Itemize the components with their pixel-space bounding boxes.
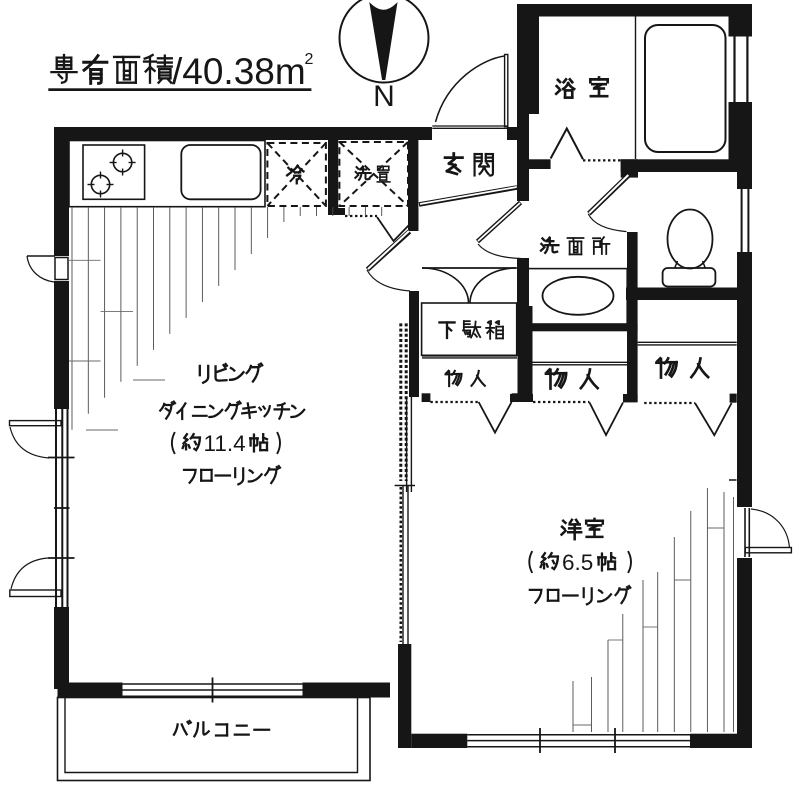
svg-text:N: N	[373, 80, 395, 113]
svg-text:6.5: 6.5	[562, 550, 593, 575]
svg-text:2: 2	[305, 51, 314, 68]
svg-text:11.4: 11.4	[204, 431, 246, 456]
svg-text:/40.38m: /40.38m	[172, 51, 306, 92]
